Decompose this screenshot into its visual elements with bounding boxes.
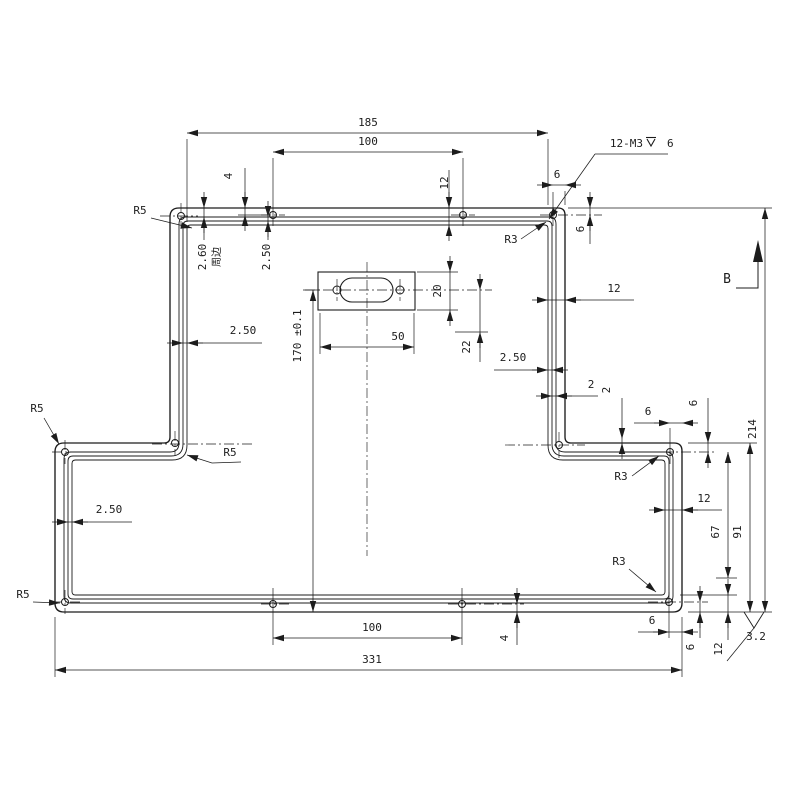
cad-drawing-page: 18510050100331121266622.502.502.502.602.… bbox=[0, 0, 800, 800]
dim-label: 170 ±0.1 bbox=[291, 310, 304, 363]
radius-label: R5 bbox=[16, 588, 29, 601]
arrowhead-icon bbox=[187, 130, 198, 136]
radius-label: R3 bbox=[614, 470, 627, 483]
leader-arrow-icon bbox=[187, 455, 198, 461]
dim-label: 2.50 bbox=[96, 503, 123, 516]
arrowhead-icon bbox=[403, 344, 414, 350]
dim-label: 100 bbox=[362, 621, 382, 634]
dim-label: 2.50 bbox=[260, 244, 273, 271]
dim-label: 50 bbox=[391, 330, 404, 343]
dim-label: 67 bbox=[709, 525, 722, 538]
arrowhead-icon bbox=[762, 601, 768, 612]
leader-arrow-icon bbox=[646, 582, 656, 592]
dim-label: 6 bbox=[687, 400, 700, 407]
leader-line bbox=[549, 154, 595, 219]
arrowhead-icon bbox=[273, 635, 284, 641]
arrowhead-icon bbox=[320, 344, 331, 350]
arrowhead-icon bbox=[452, 149, 463, 155]
dim-label: 6 bbox=[645, 405, 652, 418]
drawing-canvas: 18510050100331121266622.502.502.502.602.… bbox=[0, 0, 800, 800]
arrowhead-icon bbox=[725, 567, 731, 578]
dim-label: 4 bbox=[222, 172, 235, 179]
leader-arrow-icon bbox=[51, 433, 59, 444]
dim-label: 6 bbox=[649, 614, 656, 627]
dim-label: 331 bbox=[362, 653, 382, 666]
arrowhead-icon bbox=[747, 601, 753, 612]
radius-label: R5 bbox=[133, 204, 146, 217]
dim-label: 6 bbox=[574, 226, 587, 233]
dim-label: 12 bbox=[607, 282, 620, 295]
arrowhead-icon bbox=[747, 443, 753, 454]
depth-symbol-icon bbox=[647, 139, 655, 146]
dim-label: 185 bbox=[358, 116, 378, 129]
dim-label: 12 bbox=[697, 492, 710, 505]
perimeter-note: 周边 bbox=[211, 247, 223, 267]
thread-depth-value: 6 bbox=[667, 137, 674, 150]
arrowhead-icon bbox=[451, 635, 462, 641]
thread-callout: 12-M3 bbox=[610, 137, 643, 150]
dim-label: 2 bbox=[588, 378, 595, 391]
dim-label: 91 bbox=[731, 525, 744, 538]
pocket-wall-line bbox=[72, 225, 665, 595]
dim-label: 6 bbox=[554, 168, 561, 181]
arrowhead-icon bbox=[55, 667, 66, 673]
arrowhead-icon bbox=[671, 667, 682, 673]
arrowhead-icon bbox=[762, 208, 768, 219]
dim-label: 6 bbox=[684, 644, 697, 651]
arrowhead-icon bbox=[310, 601, 316, 612]
pocket-wall-line bbox=[64, 217, 673, 603]
dim-label: 12 bbox=[438, 176, 451, 189]
view-label: B bbox=[723, 272, 731, 287]
dim-label: 100 bbox=[358, 135, 378, 148]
leader-arrow-icon bbox=[648, 456, 659, 465]
dim-label: 12 bbox=[712, 642, 725, 655]
arrowhead-icon bbox=[725, 452, 731, 463]
dim-label: 4 bbox=[498, 634, 511, 641]
arrowhead-icon bbox=[537, 130, 548, 136]
dim-label: 214 bbox=[746, 419, 759, 439]
dim-label: 2.50 bbox=[500, 351, 527, 364]
radius-label: R3 bbox=[504, 233, 517, 246]
roughness-symbol-icon bbox=[744, 612, 764, 628]
arrowhead-icon bbox=[310, 290, 316, 301]
radius-label: R5 bbox=[30, 402, 43, 415]
dim-label: 20 bbox=[431, 284, 444, 297]
dim-label: 2 bbox=[600, 387, 613, 394]
dim-label: 2.50 bbox=[230, 324, 257, 337]
roughness-value: 3.2 bbox=[746, 630, 766, 643]
arrowhead-icon bbox=[273, 149, 284, 155]
view-arrow-icon bbox=[753, 240, 763, 262]
dim-label: 2.60 bbox=[196, 244, 209, 271]
radius-label: R5 bbox=[223, 446, 236, 459]
radius-label: R3 bbox=[612, 555, 625, 568]
leader-arrow-icon bbox=[535, 222, 546, 231]
part-outline bbox=[55, 208, 682, 612]
dim-label: 22 bbox=[460, 340, 473, 353]
